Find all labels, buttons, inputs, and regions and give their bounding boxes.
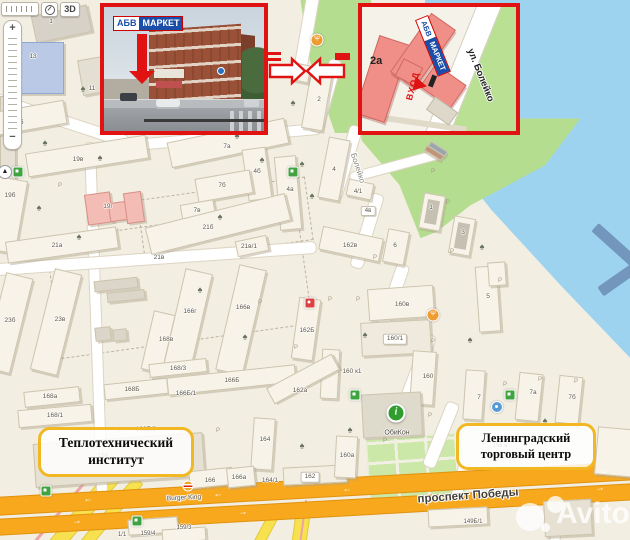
address-label: 160а: [340, 453, 354, 460]
address-label: 7в: [193, 208, 200, 215]
minimap-inset: 2а ВХОД АБВМАРКЕТ ул. Болейко: [358, 3, 520, 135]
food-icon: Ψ: [427, 309, 440, 322]
zoom-in-button[interactable]: +: [4, 21, 21, 35]
shopred-icon: [305, 298, 316, 309]
tree-icon: ♠: [81, 85, 86, 94]
address-label: 166г: [183, 309, 196, 316]
park-icon: Р: [450, 249, 454, 255]
photo-car-white: [156, 99, 180, 109]
address-label: 159/3: [176, 525, 191, 531]
address-label: 3: [461, 230, 465, 237]
tree-icon: ♠: [291, 99, 296, 108]
address-label: 166Б/1: [176, 391, 197, 398]
address-label: 5: [486, 294, 490, 301]
transit-icon: [288, 167, 299, 178]
address-label: 164: [260, 437, 271, 444]
park-icon: Р: [431, 169, 435, 175]
tree-icon: ♠: [218, 213, 223, 222]
address-label: 21б: [203, 225, 214, 232]
lane-arrow-icon: →: [72, 516, 81, 525]
map-building: [94, 326, 111, 342]
store-logo-market: МАРКЕТ: [139, 17, 182, 30]
address-label: 1: [429, 205, 433, 212]
address-label: 166Б: [224, 378, 239, 385]
tree-icon: ♠: [300, 442, 305, 451]
address-label: 19г: [103, 204, 113, 211]
lane-arrow-icon: →: [238, 507, 247, 516]
address-label: 1/1: [118, 532, 126, 538]
address-label: 168Б: [124, 387, 139, 394]
address-label: 23в: [55, 317, 66, 324]
park-icon: Р: [538, 377, 542, 383]
address-label: 4: [332, 167, 336, 174]
transit-icon: [41, 486, 52, 497]
photo-inset: АБВМАРКЕТ: [100, 3, 268, 135]
avito-watermark: Avito: [510, 492, 630, 538]
zoom-out-button[interactable]: −: [4, 131, 21, 145]
address-label: 4а: [286, 187, 293, 194]
address-label: 168/3: [170, 366, 186, 373]
park-icon: Р: [216, 428, 220, 434]
address-label: 168в: [159, 337, 173, 344]
transit-icon: [13, 167, 24, 178]
map-building: [250, 417, 276, 470]
address-label: 4в: [361, 206, 376, 216]
minimap-building-label: 2а: [370, 55, 382, 67]
park-icon: Р: [383, 438, 387, 444]
address-label: 166: [205, 478, 216, 485]
tree-icon: ♠: [348, 426, 353, 435]
tree-icon: ♠: [260, 156, 265, 165]
address-label: 13: [29, 54, 36, 61]
food-icon: Ψ: [311, 34, 324, 47]
callout-leningradsky: Ленинградский торговый центр: [456, 423, 596, 470]
callout-connector-arrows-icon: [264, 50, 350, 92]
view-3d-label: 3D: [64, 4, 76, 14]
address-label: 4б: [253, 169, 260, 176]
callout-teplotekh: Теплотехнический институт: [38, 427, 194, 477]
address-label: 160: [423, 374, 434, 381]
info-icon: i: [387, 404, 406, 423]
map-building: [16, 42, 64, 94]
zoom-slider[interactable]: [8, 37, 17, 129]
callout-leningradsky-line1: Ленинградский: [463, 431, 589, 447]
photo-car-dark: [120, 93, 137, 101]
tree-icon: ♠: [77, 233, 82, 242]
park-icon: Р: [356, 297, 360, 303]
park-icon: Р: [258, 300, 262, 306]
lane-arrow-icon: ←: [213, 489, 222, 498]
address-label: 162а: [293, 388, 307, 395]
avito-watermark-text: Avito: [556, 497, 630, 531]
callout-leningradsky-line2: торговый центр: [463, 447, 589, 463]
photo-banner: [154, 69, 184, 78]
park-icon: Р: [446, 200, 450, 206]
address-label: 7а: [223, 144, 230, 151]
address-label: 162Б: [299, 328, 314, 335]
address-label: 21а: [52, 243, 63, 250]
address-label: 166в: [236, 305, 250, 312]
park-icon: Р: [431, 339, 435, 345]
shopblue-icon: [491, 401, 503, 413]
tree-icon: ♠: [243, 333, 248, 342]
park-icon: Р: [498, 278, 502, 284]
ruler-control[interactable]: [1, 2, 39, 16]
park-icon: Р: [58, 183, 62, 189]
address-label: 164/1: [262, 478, 278, 485]
photo-road-sign: [217, 67, 225, 75]
tree-icon: ♠: [363, 331, 368, 340]
map-screenshot: ♠♠♠♠♠♠♠♠♠♠♠♠♠♠♠♠♠♠♠♠РРРРРРРРРРРРРРРРРРΨΨ…: [0, 0, 630, 540]
park-icon: Р: [328, 297, 332, 303]
view-3d-button[interactable]: 3D: [60, 2, 80, 17]
address-label: ОбиКон: [384, 430, 409, 437]
avito-logo-icon: [516, 503, 544, 531]
photo-trees: [242, 47, 266, 105]
address-label: 168а: [43, 394, 57, 401]
park-icon: Р: [428, 413, 432, 419]
park-icon: Р: [574, 379, 578, 385]
park-icon: Р: [294, 345, 298, 351]
transit-icon: [350, 390, 361, 401]
tree-icon: ♠: [300, 160, 305, 169]
tree-icon: ♠: [480, 243, 485, 252]
address-label: 4/1: [354, 189, 362, 195]
address-label: 7: [477, 395, 481, 402]
tree-icon: ♠: [310, 192, 315, 201]
address-label: 159/4: [140, 531, 155, 537]
address-label: 1: [49, 19, 53, 26]
address-label: 160 к1: [342, 369, 361, 376]
tree-icon: ♠: [98, 154, 103, 163]
store-logo: АБВМАРКЕТ: [113, 16, 183, 31]
store-logo-abv: АБВ: [114, 17, 139, 30]
address-label: 160в: [395, 302, 409, 309]
lane-arrow-icon: ←: [600, 466, 609, 475]
address-label: 160/1: [383, 334, 407, 345]
photo-fence: [144, 119, 264, 122]
park-icon: Р: [373, 255, 377, 261]
zoom-control[interactable]: + −: [3, 20, 22, 150]
tree-icon: ♠: [198, 286, 203, 295]
address-label: 149Б/1: [464, 519, 483, 525]
address-label: 166а: [232, 475, 246, 482]
map-building: [462, 369, 485, 420]
callout-teplotekh-line1: Теплотехнический: [45, 435, 187, 452]
address-label: 19б: [5, 193, 16, 200]
tree-icon: ♠: [37, 204, 42, 213]
tree-icon: ♠: [43, 139, 48, 148]
photo-red-sign: [156, 81, 182, 88]
address-label: 19в: [73, 157, 84, 164]
address-label: 21в/1: [241, 244, 257, 251]
callout-teplotekh-line2: институт: [45, 452, 187, 469]
address-label: 11: [89, 86, 96, 93]
photo-arrow-shaft-icon: [137, 34, 147, 71]
address-label: 162в: [343, 243, 357, 250]
park-icon: Р: [503, 382, 507, 388]
address-label: 2: [317, 97, 321, 104]
lane-arrow-icon: ←: [83, 494, 92, 503]
map-building: [112, 328, 127, 341]
address-label: 7б: [218, 183, 225, 190]
tree-icon: ♠: [468, 336, 473, 345]
address-label: 7а: [529, 390, 536, 397]
map-building: [123, 191, 145, 224]
bk-icon: [183, 481, 194, 492]
lane-arrow-icon: ←: [342, 484, 351, 493]
transit-icon: [132, 516, 143, 527]
compass-control[interactable]: [41, 2, 58, 17]
address-label: 162: [301, 472, 320, 483]
photo-car-silver: [244, 99, 259, 107]
address-label: 6: [393, 243, 397, 250]
address-label: 7б: [568, 395, 575, 402]
transit-icon: [505, 390, 516, 401]
map-building: [594, 426, 630, 477]
address-label: 21в: [154, 255, 165, 262]
photo-arrow-head-icon: [129, 71, 155, 84]
address-label: 168/1: [47, 413, 63, 420]
avito-logo-dot-tiny: [541, 523, 550, 532]
address-label: 23б: [5, 318, 16, 325]
